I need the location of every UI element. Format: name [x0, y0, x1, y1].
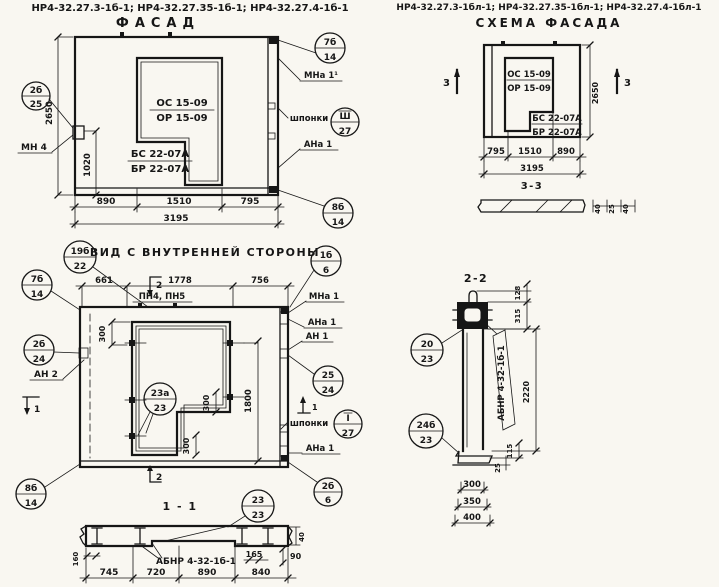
section-flag-3-left: 3 — [443, 68, 460, 93]
svg-text:165: 165 — [246, 550, 263, 559]
svg-text:300: 300 — [202, 394, 211, 411]
callout-2b-24: 2б 24 — [24, 335, 79, 365]
label-shponki-facade: шпонки — [278, 108, 328, 124]
svg-text:890: 890 — [198, 568, 217, 578]
svg-text:840: 840 — [252, 568, 271, 578]
svg-text:2: 2 — [156, 473, 162, 483]
inner-view-drawing: ВИД С ВНУТРЕННЕЙ СТОРОНЫ 661 1778 756 2 … — [16, 241, 362, 509]
svg-text:19б: 19б — [71, 246, 90, 257]
svg-text:23а: 23а — [151, 389, 170, 399]
svg-text:25: 25 — [30, 100, 43, 110]
svg-text:128: 128 — [514, 286, 522, 301]
facade-door-label-top: БС 22-07А — [131, 149, 189, 160]
svg-text:25: 25 — [322, 371, 335, 381]
svg-text:МН 4: МН 4 — [21, 143, 47, 153]
svg-text:АНа 1: АНа 1 — [306, 444, 334, 454]
callout-25-24: 25 24 — [288, 355, 343, 396]
facade-door-label-bottom: БР 22-07А — [131, 164, 189, 175]
svg-text:400: 400 — [463, 513, 481, 523]
svg-text:14: 14 — [332, 218, 345, 228]
svg-text:14: 14 — [31, 290, 44, 300]
svg-text:27: 27 — [342, 429, 355, 439]
header-left-codes: НР4-32.27.3-1б-1; НР4-32.27.35-1б-1; НР4… — [31, 2, 348, 14]
svg-text:24: 24 — [322, 386, 335, 396]
callout-sh-27: Ш 27 — [331, 108, 359, 137]
svg-text:25: 25 — [608, 204, 616, 214]
svg-text:АН 2: АН 2 — [34, 370, 58, 380]
svg-text:300: 300 — [463, 480, 481, 490]
svg-text:2б: 2б — [322, 481, 335, 492]
svg-text:160: 160 — [72, 552, 80, 567]
schema-door-label-bottom: БР 22-07А — [532, 128, 582, 138]
svg-text:2650: 2650 — [591, 81, 600, 104]
svg-text:АБНР 4-32-1б-1: АБНР 4-32-1б-1 — [496, 345, 507, 421]
svg-text:40: 40 — [594, 204, 602, 214]
svg-text:3195: 3195 — [520, 164, 544, 174]
inner-window-opening — [125, 322, 244, 455]
svg-text:I: I — [346, 414, 349, 424]
section-flag-1-right: 1 — [298, 396, 318, 413]
facade-drawing: ОС 15-09 ОР 15-09 БС 22-07А БР 22-07А 26… — [18, 32, 359, 228]
svg-text:795: 795 — [241, 197, 260, 207]
svg-text:756: 756 — [251, 276, 269, 286]
svg-text:1: 1 — [312, 403, 318, 412]
svg-text:27: 27 — [339, 127, 352, 137]
svg-text:350: 350 — [463, 497, 481, 507]
svg-text:23: 23 — [252, 511, 265, 521]
inner-dim-1800: 1800 — [234, 338, 261, 464]
svg-text:АН 1: АН 1 — [306, 332, 329, 342]
section-flag-1-left: 1 — [23, 397, 40, 415]
svg-text:23: 23 — [420, 436, 433, 446]
section-3-3-title: 3-3 — [521, 181, 544, 192]
svg-text:25: 25 — [494, 463, 502, 473]
svg-text:АБНР 4-32-1б-1: АБНР 4-32-1б-1 — [156, 556, 236, 567]
drawing-sheet: НР4-32.27.3-1б-1; НР4-32.27.35-1б-1; НР4… — [0, 0, 719, 587]
svg-text:795: 795 — [487, 147, 505, 157]
svg-text:8б: 8б — [332, 202, 345, 213]
section-2-2-title: 2-2 — [464, 272, 488, 285]
svg-text:890: 890 — [97, 197, 116, 207]
svg-text:1: 1 — [34, 405, 40, 415]
svg-text:1б: 1б — [320, 250, 333, 261]
svg-text:14: 14 — [25, 499, 38, 509]
svg-text:АНа 1: АНа 1 — [304, 140, 332, 150]
inner-dim-300-bottom: 300 — [182, 432, 199, 458]
svg-text:23: 23 — [421, 355, 434, 365]
svg-text:1800: 1800 — [244, 389, 254, 413]
schema-title: СХЕМА ФАСАДА — [476, 16, 623, 30]
label-pn4-pn5: ПН4, ПН5 — [133, 292, 192, 307]
section-1-1: 1 - 1 23 23 АБНР 4-32-1б-1 160 165 — [72, 490, 306, 583]
svg-text:МНа 1¹: МНа 1¹ — [304, 71, 338, 81]
header-right-codes: НР4-32.27.3-1бл-1; НР4-32.27.35-1бл-1; Н… — [396, 2, 701, 13]
svg-text:1020: 1020 — [83, 153, 93, 177]
svg-text:661: 661 — [95, 276, 113, 286]
svg-text:6: 6 — [323, 266, 329, 276]
callout-24b-23: 24б 23 — [409, 414, 459, 453]
schema-window-label-bottom: ОР 15-09 — [507, 84, 551, 94]
svg-text:890: 890 — [557, 147, 575, 157]
svg-text:3: 3 — [443, 78, 450, 89]
section-1-1-title: 1 - 1 — [162, 500, 197, 513]
dim-315: 315 — [488, 302, 531, 332]
svg-text:24: 24 — [33, 355, 46, 365]
svg-text:20: 20 — [421, 340, 434, 350]
svg-text:14: 14 — [324, 53, 337, 63]
inner-dim-300-top: 300 — [98, 319, 130, 348]
svg-text:2220: 2220 — [522, 380, 531, 403]
label-an1: АН 1 — [288, 332, 333, 350]
callout-23-23: 23 23 — [228, 490, 274, 527]
svg-text:АНа 1: АНа 1 — [308, 318, 336, 328]
svg-text:22: 22 — [74, 262, 87, 272]
svg-text:8б: 8б — [25, 483, 38, 494]
callout-8b-14-facade: 8б 14 — [278, 190, 353, 228]
label-ana1-top: АНа 1 — [288, 318, 342, 328]
inner-view-title: ВИД С ВНУТРЕННЕЙ СТОРОНЫ — [90, 246, 320, 259]
svg-text:745: 745 — [100, 568, 119, 578]
callout-2b-6: 2б 6 — [288, 462, 342, 506]
section-2-2-panel-body — [463, 329, 483, 451]
svg-text:шпонки: шпонки — [290, 419, 328, 429]
svg-text:300: 300 — [182, 437, 191, 454]
svg-text:40: 40 — [622, 204, 630, 214]
svg-text:1510: 1510 — [518, 147, 542, 157]
label-ana1-bottom: АНа 1 — [288, 444, 340, 454]
dim-300-stack: 300 350 400 — [452, 480, 494, 526]
section-2-2: 2-2 АБНР 4-32-1б-1 128 315 — [409, 272, 540, 526]
svg-text:7б: 7б — [324, 37, 337, 48]
schema-dim-2650: 2650 — [582, 42, 600, 140]
svg-text:3: 3 — [624, 78, 631, 89]
facade-title: ФАСАД — [116, 16, 200, 31]
svg-text:2: 2 — [156, 281, 162, 291]
facade-dim-2650: 2650 — [45, 34, 73, 198]
svg-text:115: 115 — [506, 444, 514, 459]
section-flag-3-right: 3 — [614, 68, 631, 93]
dim-40: 40 — [290, 527, 306, 545]
dim-115: 115 — [490, 440, 523, 461]
dim-90: 90 — [280, 546, 302, 566]
svg-text:6: 6 — [325, 496, 331, 506]
svg-text:МНа 1: МНа 1 — [309, 292, 339, 302]
schema-facade-drawing: ОС 15-09 ОР 15-09 БС 22-07А БР 22-07А 3 … — [443, 41, 635, 214]
section-3-3-profile: 40 25 40 — [478, 200, 635, 214]
svg-text:7б: 7б — [31, 274, 44, 285]
schema-window-label-top: ОС 15-09 — [507, 70, 551, 80]
svg-text:Ш: Ш — [339, 112, 350, 122]
callout-8b-14-inner: 8б 14 — [16, 464, 80, 509]
callout-23a-23: 23а 23 — [138, 383, 176, 435]
facade-window-label-bottom: ОР 15-09 — [156, 113, 207, 124]
svg-text:3195: 3195 — [163, 214, 188, 224]
label-ana1-facade: АНа 1 — [278, 140, 338, 168]
svg-text:315: 315 — [514, 309, 522, 324]
callout-7b-14-inner: 7б 14 — [22, 270, 80, 310]
section-2-2-label: АБНР 4-32-1б-1 — [486, 324, 515, 430]
svg-text:2б: 2б — [33, 339, 46, 350]
svg-text:23: 23 — [154, 404, 167, 414]
svg-text:1778: 1778 — [168, 276, 192, 286]
section-2-2-top-anchor — [453, 291, 492, 329]
schema-door-label-top: БС 22-07А — [532, 114, 582, 124]
facade-window-label-top: ОС 15-09 — [156, 98, 207, 109]
section-1-1-label: АБНР 4-32-1б-1 — [143, 543, 236, 567]
svg-text:24б: 24б — [417, 420, 436, 431]
section-1-1-profile — [80, 526, 292, 546]
svg-text:720: 720 — [147, 568, 166, 578]
callout-I-27: I 27 — [334, 410, 362, 439]
svg-text:шпонки: шпонки — [290, 114, 328, 124]
svg-text:23: 23 — [252, 496, 265, 506]
svg-text:1510: 1510 — [166, 197, 191, 207]
svg-text:2б: 2б — [30, 85, 43, 96]
svg-text:40: 40 — [298, 532, 306, 542]
callout-20-23: 20 23 — [411, 330, 462, 366]
svg-text:ПН4, ПН5: ПН4, ПН5 — [139, 292, 186, 302]
label-mn4: МН 4 — [18, 135, 73, 153]
dim-165: 165 — [244, 550, 268, 563]
label-mna1-inner: МНа 1 — [288, 292, 344, 313]
svg-text:300: 300 — [98, 325, 107, 342]
callout-7b-14: 7б 14 — [278, 33, 345, 63]
svg-text:90: 90 — [290, 552, 302, 561]
